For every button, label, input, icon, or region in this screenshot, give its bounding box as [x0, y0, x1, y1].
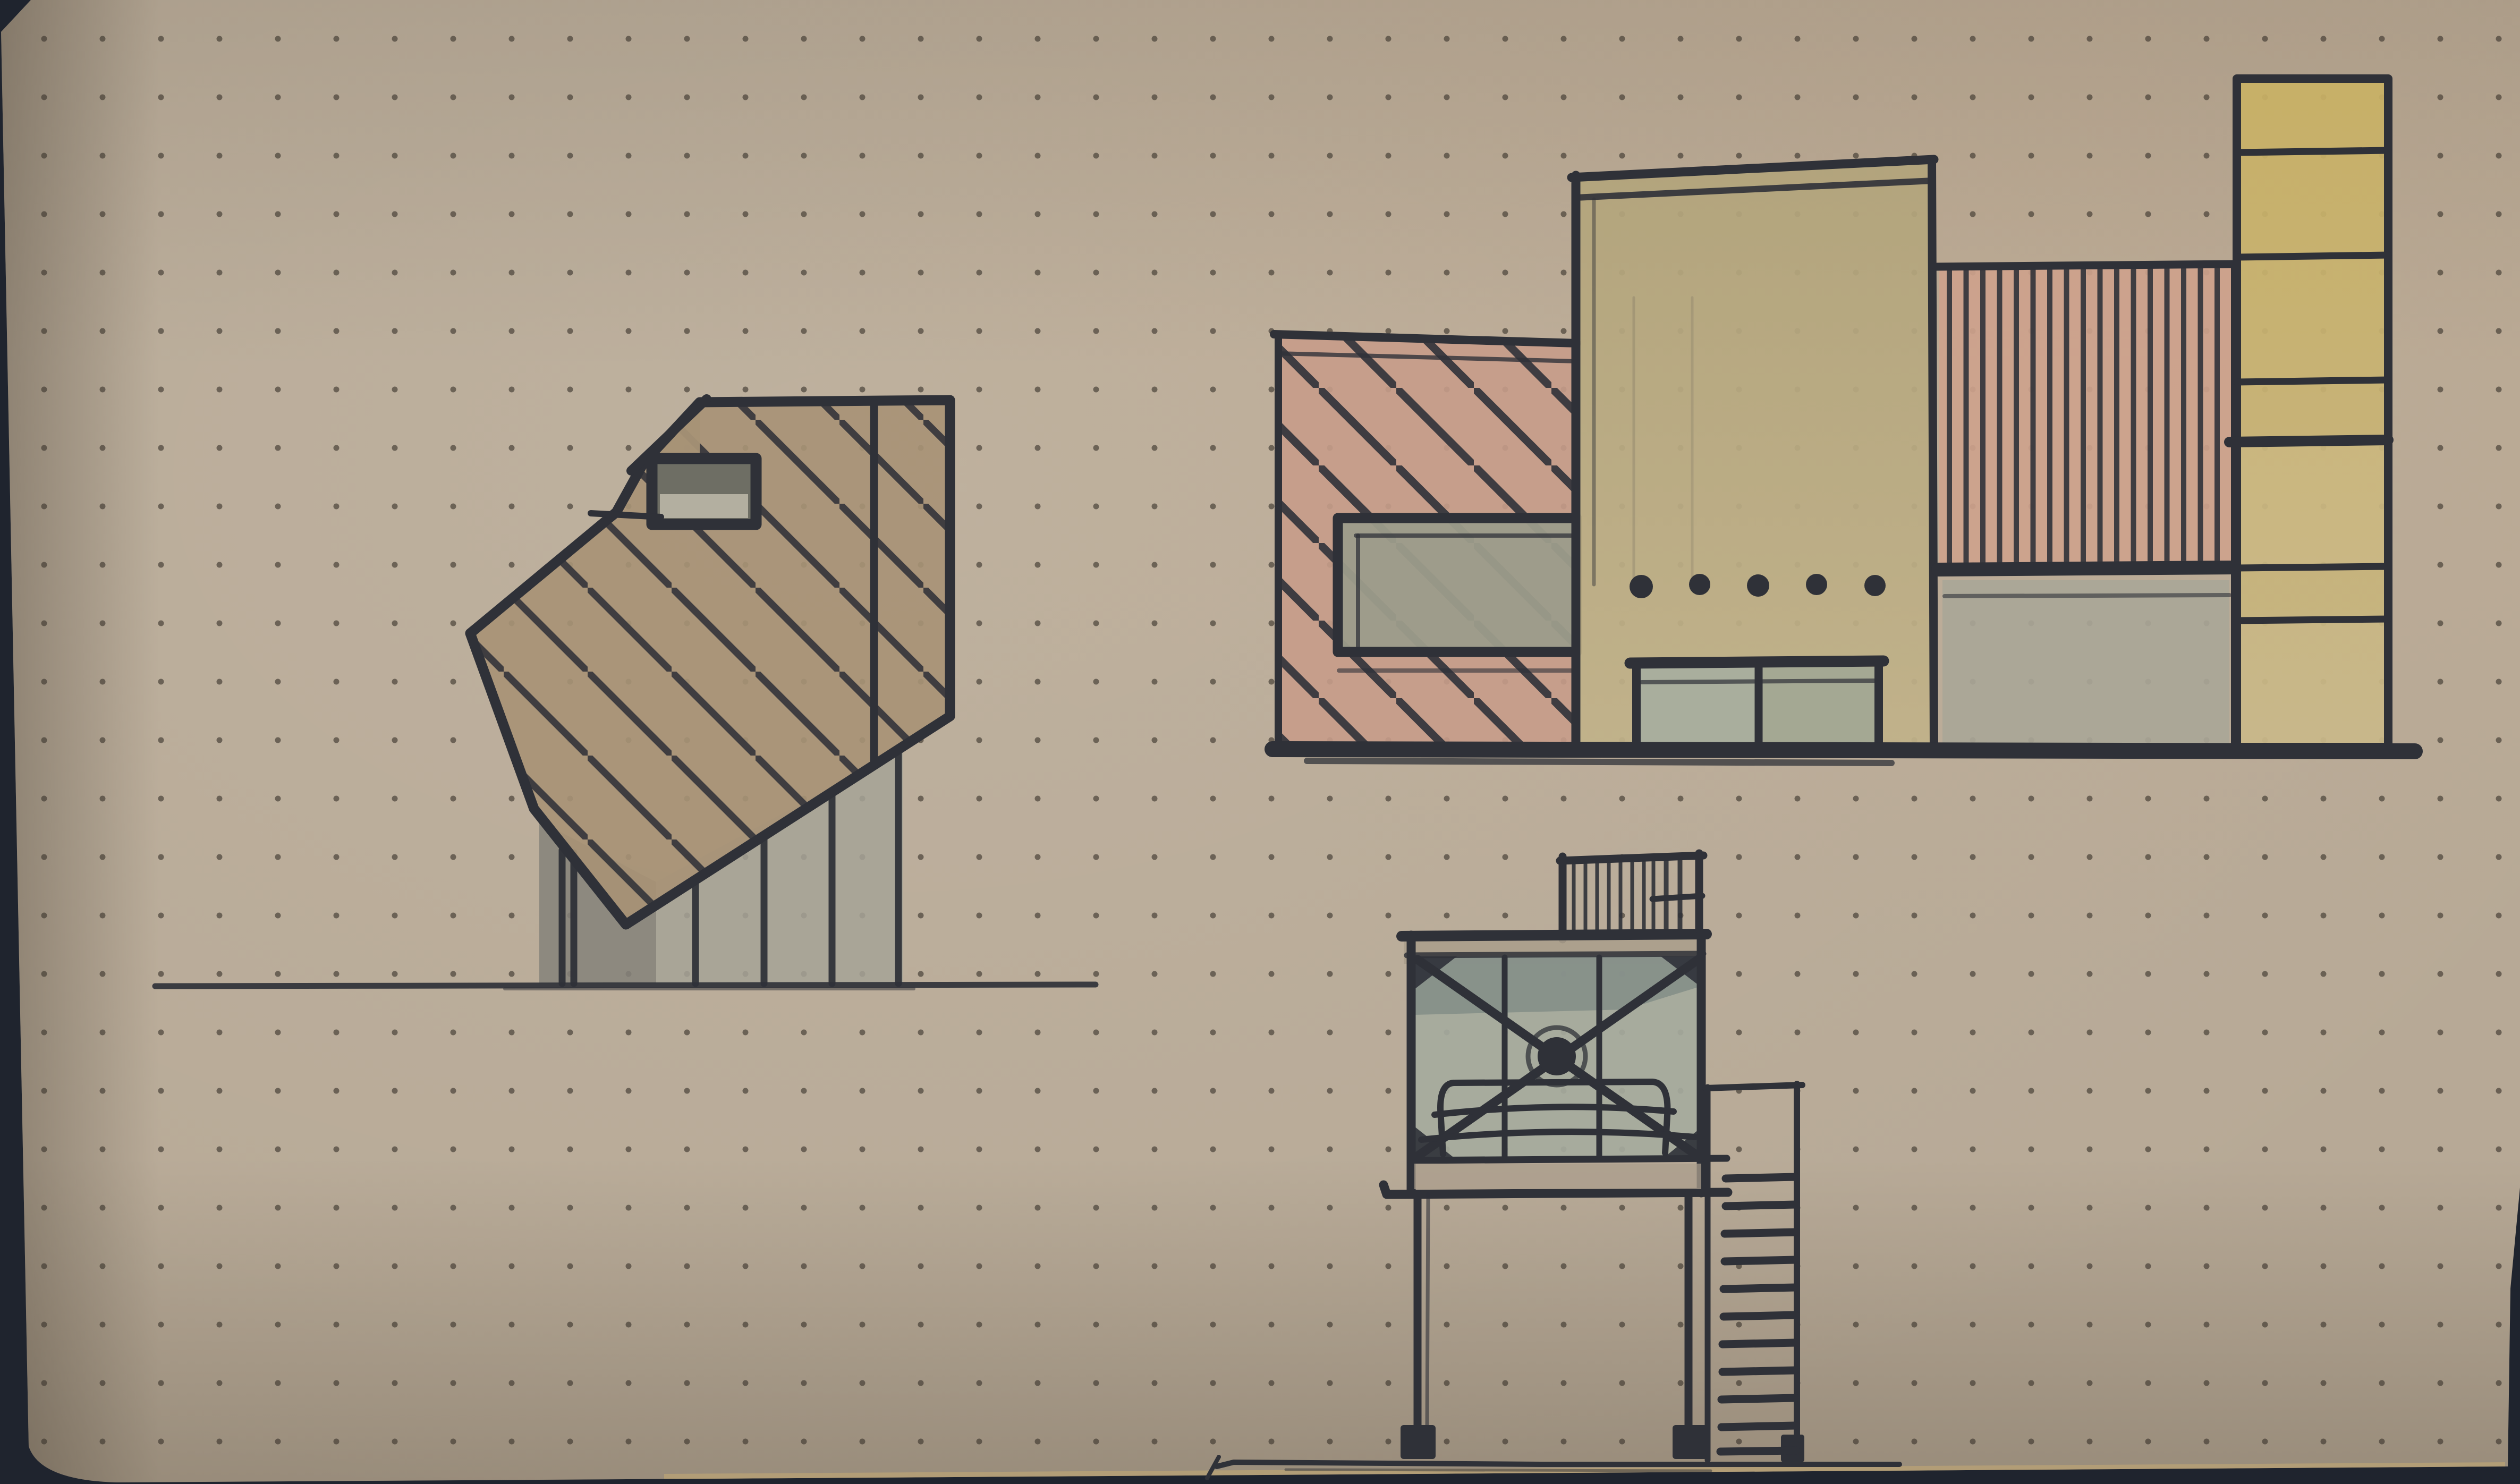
- ribbon-window-glass: [1338, 518, 1577, 652]
- pavilion-box: [1384, 933, 1728, 1194]
- tower-right-edge: [1932, 159, 1934, 748]
- sketch-canvas: [0, 0, 2520, 1484]
- stair-top-rail: [1706, 1085, 1802, 1088]
- railing-top-bar: [1560, 855, 1703, 861]
- clerestory-glass-light: [660, 494, 748, 518]
- roof-edge-inner: [1407, 954, 1703, 955]
- olive-tower: [1572, 159, 1934, 751]
- salmon-hatched-block: [1274, 334, 1577, 748]
- floor-line-inner: [1411, 1158, 1727, 1160]
- floor-slab-wash: [1414, 1164, 1701, 1189]
- railing-mid-bar: [1652, 896, 1702, 899]
- clerestory-ledge: [591, 513, 661, 517]
- brace-node: [1538, 1037, 1576, 1075]
- photo-of-sketch-page: [0, 0, 2520, 1484]
- door-left-pane: [1639, 667, 1755, 749]
- gray-base-wash: [1942, 580, 2229, 746]
- segment-tint-b: [2237, 620, 2388, 747]
- gray-base-inner-line: [1945, 595, 2229, 596]
- panel-top-edge: [1936, 264, 2237, 267]
- panel-bottom-bar: [1938, 567, 2236, 570]
- roof-edge-outer: [1402, 934, 1707, 936]
- double-doors: [1630, 661, 1883, 751]
- striped-panel: [1936, 264, 2237, 746]
- segment-tint-a: [2237, 441, 2388, 568]
- panel-stripes: [1939, 266, 2235, 574]
- yellow-slab-tower: [2229, 79, 2388, 747]
